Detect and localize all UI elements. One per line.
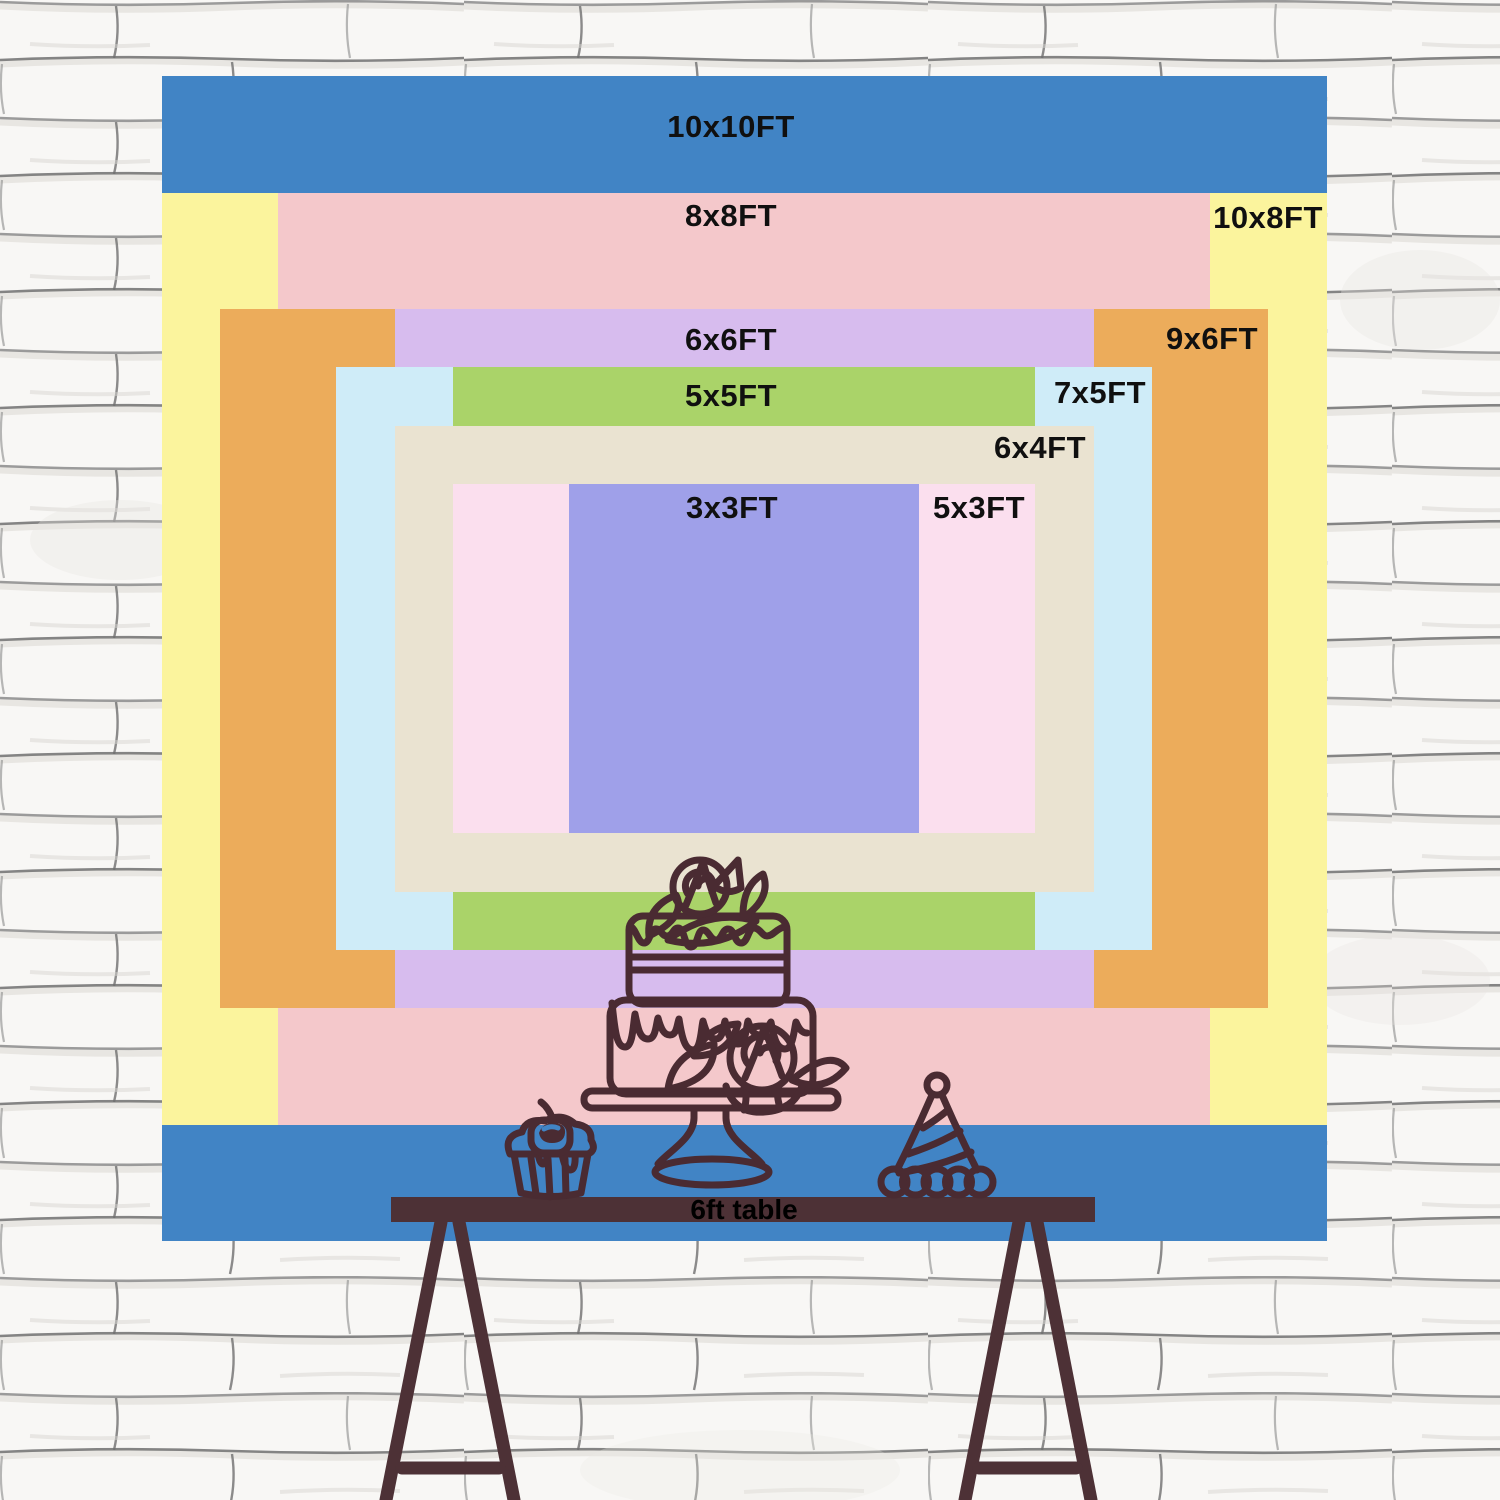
table-and-cake-illustration	[0, 0, 1500, 1500]
table-left-leg	[386, 1222, 441, 1500]
party-hat-icon	[881, 1075, 993, 1195]
table-left-leg	[459, 1222, 514, 1500]
table-right-leg	[1037, 1222, 1091, 1500]
table-right-leg	[965, 1222, 1019, 1500]
table	[386, 1197, 1095, 1500]
rose-bottom	[668, 1024, 846, 1112]
table-size-label: 6ft table	[690, 1194, 797, 1226]
backdrop-size-chart: 10x10FT10x8FT8x8FT9x6FT6x6FT7x5FT5x5FT6x…	[0, 0, 1500, 1500]
birthday-cake-icon	[584, 860, 846, 1185]
cupcake-icon	[508, 1102, 593, 1197]
